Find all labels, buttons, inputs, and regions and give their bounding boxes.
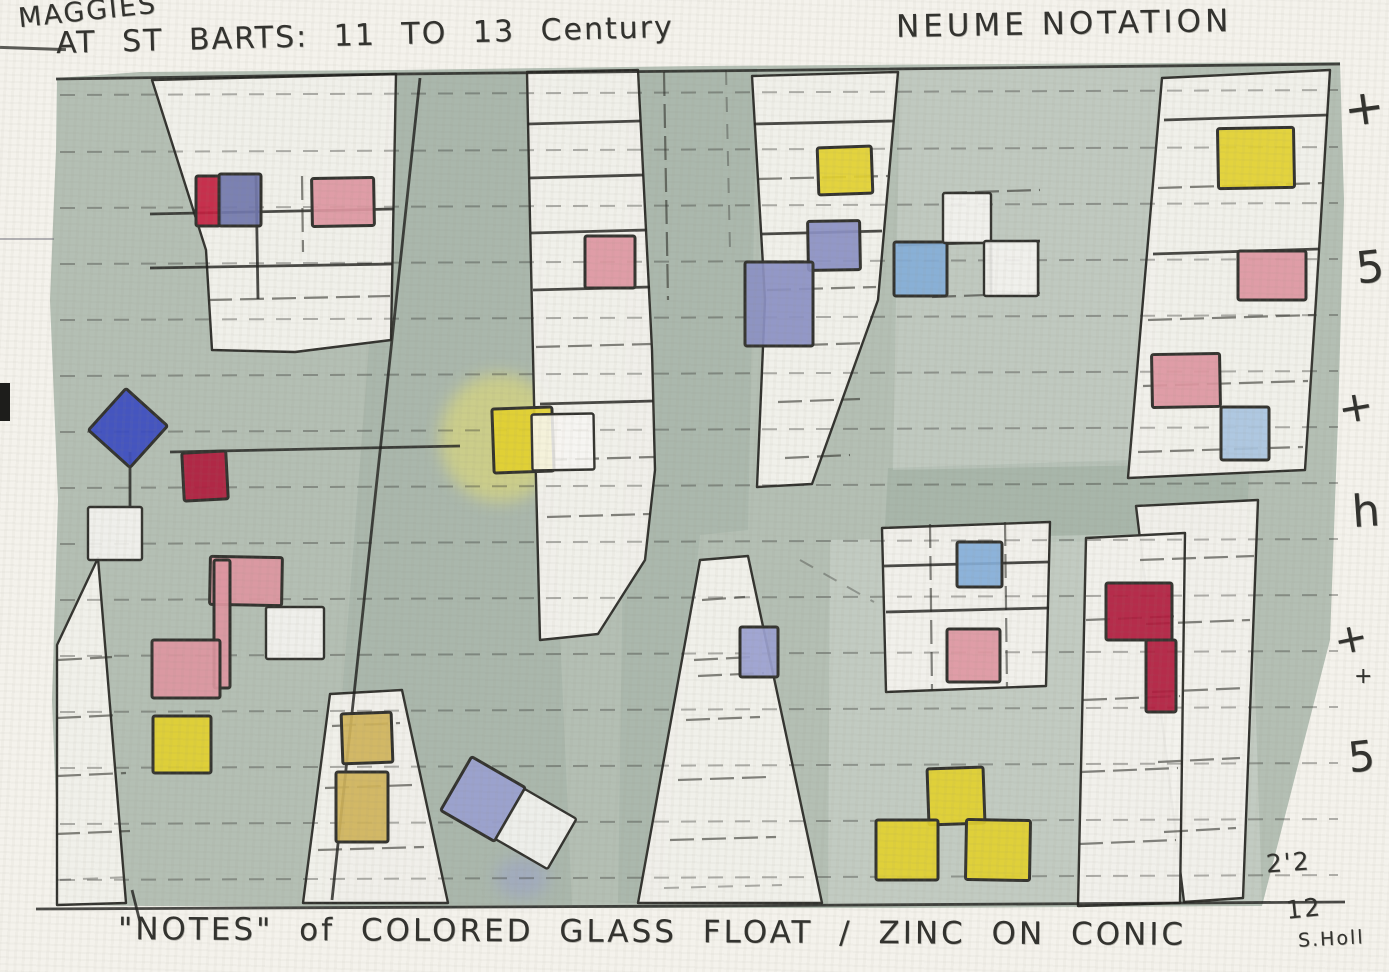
glass-note-square bbox=[336, 772, 388, 842]
glass-note-square bbox=[927, 767, 985, 825]
margin-mark: 5 bbox=[1346, 731, 1380, 783]
glass-note-square bbox=[894, 242, 947, 296]
glass-note-square bbox=[808, 221, 861, 271]
glass-note-square bbox=[219, 174, 261, 226]
left-edge-tick bbox=[0, 383, 10, 421]
glass-note-square bbox=[585, 236, 635, 288]
glass-note-square bbox=[153, 716, 211, 773]
margin-mark: h bbox=[1350, 485, 1383, 538]
glass-note-square bbox=[957, 542, 1002, 587]
left-margin-rule bbox=[0, 238, 54, 240]
glass-note-square bbox=[266, 607, 324, 659]
glass-note-square bbox=[88, 507, 142, 560]
glass-note-square bbox=[745, 262, 813, 346]
glass-note-square bbox=[341, 712, 393, 764]
glass-note-square bbox=[182, 451, 228, 501]
glass-note-square bbox=[947, 629, 1000, 682]
glass-note-square bbox=[152, 640, 220, 698]
margin-mark: + bbox=[1354, 664, 1374, 689]
white-tower bbox=[527, 70, 655, 640]
glass-note-square bbox=[1106, 583, 1172, 640]
glass-note-square bbox=[312, 177, 375, 226]
dimension-top: 2'2 bbox=[1265, 846, 1312, 878]
title-right: NEUME NOTATION bbox=[896, 3, 1233, 45]
glass-note-square bbox=[984, 241, 1038, 296]
margin-mark: 5 bbox=[1353, 241, 1388, 295]
signature: S.Holl bbox=[1297, 926, 1365, 951]
glass-note-square bbox=[817, 146, 873, 195]
caption: "NOTES" of COLORED GLASS FLOAT / ZINC ON… bbox=[118, 911, 1186, 953]
glass-note-square bbox=[196, 176, 220, 226]
glass-note-square bbox=[1238, 251, 1306, 300]
glass-note-square bbox=[1152, 353, 1221, 407]
glass-note-square bbox=[876, 820, 938, 880]
dimension-bottom: 12 bbox=[1285, 892, 1324, 925]
glass-note-square bbox=[1146, 640, 1176, 712]
margin-mark: + bbox=[1340, 77, 1389, 138]
glass-note-square bbox=[943, 193, 991, 243]
glass-note-square bbox=[740, 627, 778, 677]
glass-note-square bbox=[532, 413, 595, 470]
glass-note-square bbox=[1221, 407, 1269, 460]
painting-layer bbox=[0, 0, 1389, 972]
glass-note-square bbox=[1217, 127, 1294, 188]
watercolor-sketch: MAGGIES AT ST BARTS: 11 TO 13 Century NE… bbox=[0, 0, 1389, 972]
glass-note-square bbox=[965, 819, 1030, 880]
